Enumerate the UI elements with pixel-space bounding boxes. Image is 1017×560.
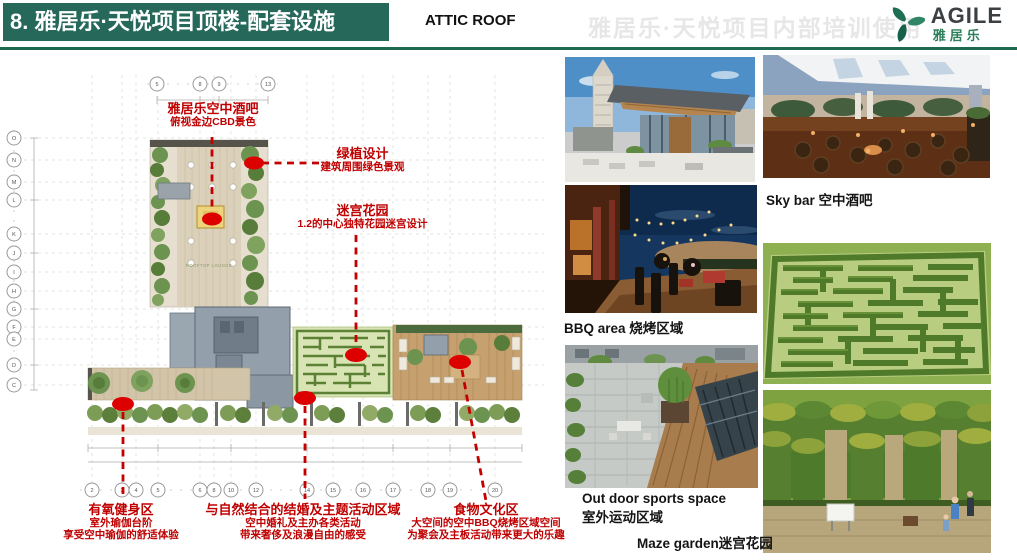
grid-label: G xyxy=(12,307,16,313)
grid-label: 8 xyxy=(198,82,201,88)
agile-logo-icon xyxy=(887,5,925,43)
note-line: 享受空中瑜伽的舒适体验 xyxy=(40,529,202,541)
note-aerobic: 有氧健身区 室外瑜伽台阶 享受空中瑜伽的舒适体验 xyxy=(40,502,202,541)
grid-label: 5 xyxy=(156,488,159,494)
note-title: 有氧健身区 xyxy=(40,502,202,517)
floor-plan: ROOFTOP LOUNGE xyxy=(0,55,550,560)
maze-photo-aerial xyxy=(763,243,991,384)
grid-label: K xyxy=(12,232,16,238)
note-wedding: 与自然结合的结婚及主题活动区域 空中婚礼及主办各类活动 带来奢侈及浪漫自由的感受 xyxy=(202,502,404,541)
note-title: 与自然结合的结婚及主题活动区域 xyxy=(202,502,404,517)
grid-label: E xyxy=(12,337,16,343)
grid-label: 18 xyxy=(425,488,431,494)
slide: 8. 雅居乐·天悦项目顶楼-配套设施 ATTIC ROOF 雅居乐·天悦项目内部… xyxy=(0,0,1017,560)
maze-photo-ground xyxy=(763,390,991,553)
grid-label: 15 xyxy=(330,488,336,494)
note-line: 带来奢侈及浪漫自由的感受 xyxy=(202,529,404,541)
grid-label: 8 xyxy=(212,488,215,494)
grid-label: J xyxy=(13,251,16,257)
skybar-photo-day xyxy=(565,57,755,182)
note-line: 1.2的中心独特花园迷宫设计 xyxy=(285,218,440,230)
note-line: 为聚会及主板活动带来更大的乐趣 xyxy=(400,529,572,541)
bbq-photo xyxy=(565,185,757,313)
maze-caption: Maze garden迷宫花园 xyxy=(637,532,773,552)
grid-label: 20 xyxy=(492,488,498,494)
grid-label: 4 xyxy=(134,488,137,494)
outdoor-sports-photo xyxy=(565,345,758,488)
note-title: 迷宫花园 xyxy=(285,203,440,218)
note-title: 食物文化区 xyxy=(400,502,572,517)
outdoor-caption-cn: 室外运动区域 xyxy=(582,506,726,526)
note-title: 绿植设计 xyxy=(300,146,425,161)
grid-label: 6 xyxy=(198,488,201,494)
note-line: 建筑周围绿色景观 xyxy=(300,161,425,173)
note-skybar: 雅居乐空中酒吧 俯视金边CBD景色 xyxy=(128,101,298,128)
skybar-caption: Sky bar 空中酒吧 xyxy=(766,189,873,209)
grid-label: 5 xyxy=(155,82,158,88)
outdoor-caption-en: Out door sports space xyxy=(582,491,726,506)
grid-label: O xyxy=(12,136,17,142)
grid-label: 2 xyxy=(90,488,93,494)
outdoor-caption: Out door sports space 室外运动区域 xyxy=(582,491,726,526)
grid-label: 17 xyxy=(390,488,396,494)
grid-label: 12 xyxy=(253,488,259,494)
grid-label: 13 xyxy=(265,82,271,88)
grid-label: H xyxy=(12,289,16,295)
bbq-caption: BBQ area 烧烤区域 xyxy=(564,317,683,337)
plan-maze-garden xyxy=(293,327,393,397)
rooftop-lounge-label: ROOFTOP LOUNGE xyxy=(186,263,232,268)
watermark-text: 雅居乐·天悦项目内部培训使用 xyxy=(588,9,923,43)
header-divider xyxy=(0,47,1017,50)
grid-label: 16 xyxy=(360,488,366,494)
grid-label: M xyxy=(12,180,17,186)
attic-roof-label: ATTIC ROOF xyxy=(425,12,516,29)
grid-label: 10 xyxy=(228,488,234,494)
note-title: 雅居乐空中酒吧 xyxy=(128,101,298,116)
note-line: 大空间的空中BBQ烧烤区域空间 xyxy=(400,517,572,529)
note-line: 室外瑜伽台阶 xyxy=(40,517,202,529)
logo-chinese: 雅居乐 xyxy=(931,29,1003,42)
page-title: 8. 雅居乐·天悦项目顶楼-配套设施 xyxy=(3,3,389,41)
skybar-photo-lounge xyxy=(763,55,990,178)
note-line: 空中婚礼及主办各类活动 xyxy=(202,517,404,529)
grid-label: 19 xyxy=(447,488,453,494)
grid-label: 14 xyxy=(304,488,310,494)
agile-logo: AGILE 雅居乐 xyxy=(887,5,1003,43)
note-maze: 迷宫花园 1.2的中心独特花园迷宫设计 xyxy=(285,203,440,230)
logo-wordmark: AGILE xyxy=(931,5,1003,27)
grid-lines xyxy=(24,75,544,483)
grid-label: 9 xyxy=(217,82,220,88)
left-lower-deck xyxy=(88,368,250,400)
grid-label: D xyxy=(12,363,16,369)
note-greenery: 绿植设计 建筑周围绿色景观 xyxy=(300,146,425,173)
grid-label: N xyxy=(12,158,16,164)
note-line: 俯视金边CBD景色 xyxy=(128,116,298,128)
plan-room xyxy=(158,183,190,199)
grid-label: C xyxy=(12,383,16,389)
note-food: 食物文化区 大空间的空中BBQ烧烤区域空间 为聚会及主板活动带来更大的乐趣 xyxy=(400,502,572,541)
grid-label: L xyxy=(12,198,15,204)
